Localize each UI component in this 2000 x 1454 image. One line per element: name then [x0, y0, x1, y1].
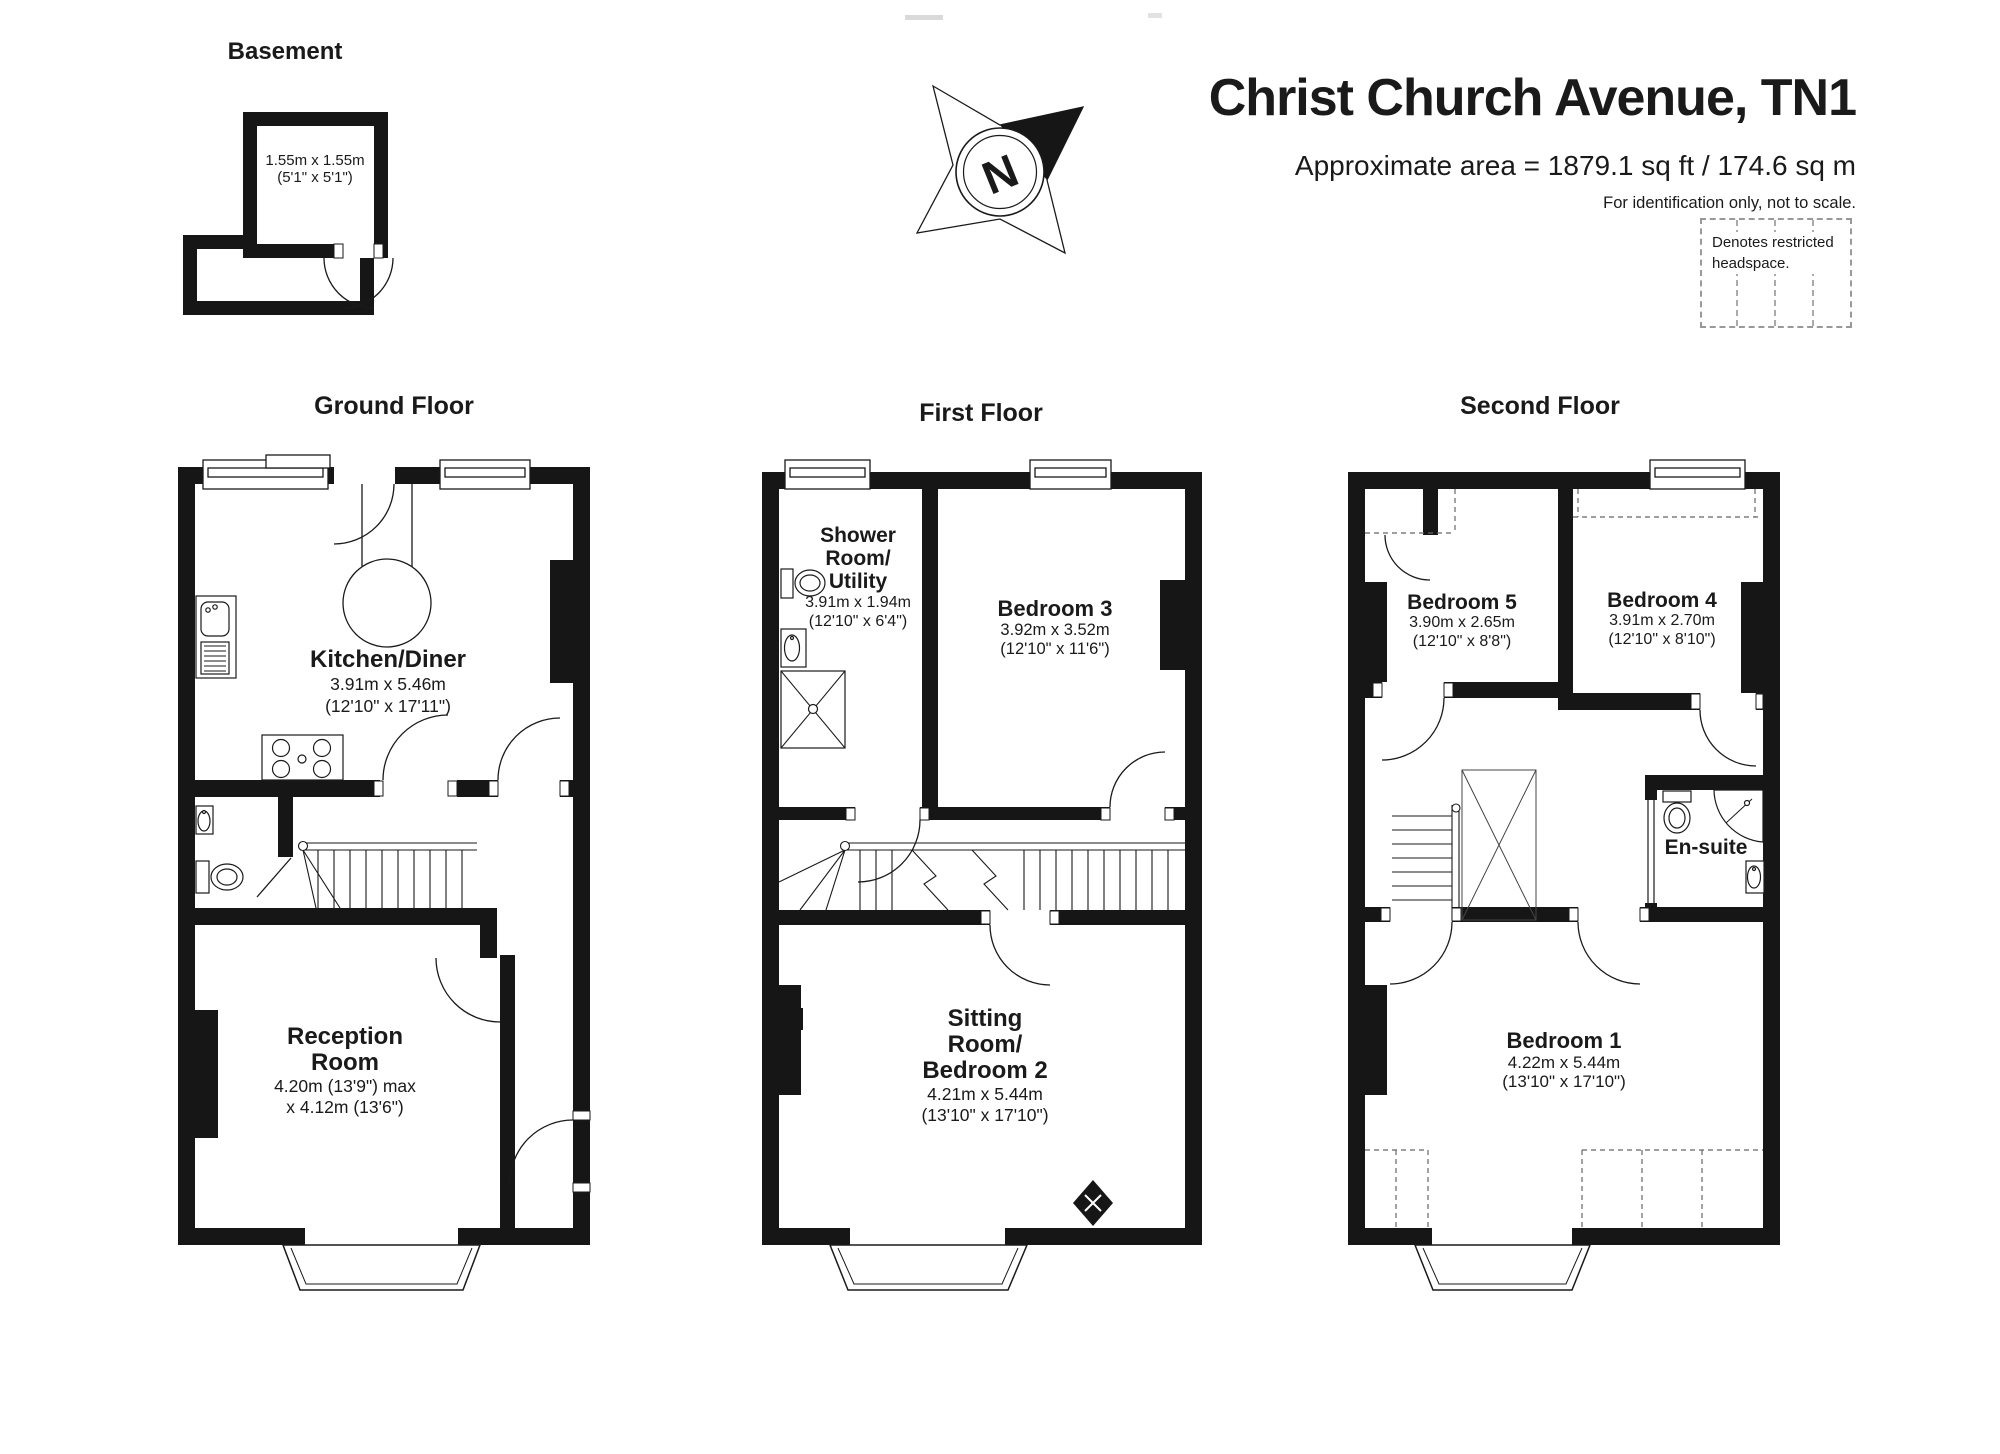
bedroom3-label: Bedroom 3 3.92m x 3.52m (12'10" x 11'6"): [998, 596, 1113, 659]
ground-floor-bay-window: [283, 1245, 480, 1290]
kitchen-sink-icon: [196, 596, 236, 678]
utility-basin-icon: [781, 629, 806, 667]
kitchen-label: Kitchen/Diner 3.91m x 5.46m (12'10" x 17…: [310, 646, 466, 717]
ground-floor-windows: [203, 455, 530, 489]
basement-plan: [183, 112, 393, 315]
front-door-leaf: [266, 455, 330, 468]
reception-label: Reception Room 4.20m (13'9") max x 4.12m…: [274, 1024, 416, 1118]
first-floor-title: First Floor: [919, 399, 1043, 428]
ensuite-sliding-door: [1648, 800, 1654, 903]
corner-flue-icon: [1073, 1180, 1113, 1226]
bedroom1-label: Bedroom 1 4.22m x 5.44m (13'10" x 17'10"…: [1502, 1028, 1625, 1091]
first-floor-door-arcs: [858, 752, 1165, 985]
ensuite-basin-icon: [1746, 861, 1764, 893]
ensuite-label: En-suite: [1665, 836, 1748, 860]
scan-artifact: [905, 15, 943, 20]
second-floor-title: Second Floor: [1460, 392, 1620, 421]
ensuite-toilet-icon: [1663, 791, 1691, 833]
wc-basin-icon: [196, 806, 213, 834]
basement-dims-m: 1.55m x 1.55m: [265, 152, 364, 169]
stair-void-cross: [1462, 770, 1536, 920]
ground-floor-plan: [178, 455, 590, 1290]
wc-toilet-icon: [196, 861, 243, 893]
sitting-room-label: Sitting Room/ Bedroom 2 4.21m x 5.44m (1…: [921, 1006, 1048, 1126]
compass-rose: N: [917, 86, 1083, 253]
legend-box: Denotes restricted headspace.: [1700, 218, 1852, 328]
first-floor-stairs: [779, 842, 1185, 911]
second-floor-windows: [1650, 460, 1745, 489]
legend-text: Denotes restricted headspace.: [1710, 232, 1836, 274]
second-floor-plan: [1348, 460, 1780, 1290]
ground-floor-title: Ground Floor: [314, 392, 474, 421]
bedroom5-label: Bedroom 5 3.90m x 2.65m (12'10" x 8'8"): [1407, 591, 1517, 651]
shower-tray-icon: [781, 671, 845, 748]
first-floor-bay-window: [830, 1245, 1027, 1290]
basement-title: Basement: [228, 38, 343, 66]
approximate-area: Approximate area = 1879.1 sq ft / 174.6 …: [1295, 150, 1856, 182]
basement-door-arcs: [324, 258, 393, 308]
floorplan-canvas: N: [0, 0, 2000, 1454]
scan-artifact: [1148, 13, 1162, 18]
bedroom4-label: Bedroom 4 3.91m x 2.70m (12'10" x 8'10"): [1607, 589, 1717, 649]
second-floor-stairs: [1392, 804, 1460, 920]
basement-room-label: 1.55m x 1.55m (5'1" x 5'1"): [265, 152, 364, 186]
basement-dims-ft: (5'1" x 5'1"): [265, 169, 364, 186]
shower-room-label: Shower Room/ Utility 3.91m x 1.94m (12'1…: [805, 524, 911, 631]
identification-note: For identification only, not to scale.: [1603, 194, 1856, 213]
page-title: Christ Church Avenue, TN1: [1209, 68, 1856, 128]
second-floor-bay-window: [1415, 1245, 1590, 1290]
hob-icon: [262, 735, 343, 780]
ground-floor-stairs: [299, 842, 478, 909]
kitchen-circle-feature: [343, 484, 431, 647]
ensuite-shower-icon: [1714, 790, 1763, 842]
